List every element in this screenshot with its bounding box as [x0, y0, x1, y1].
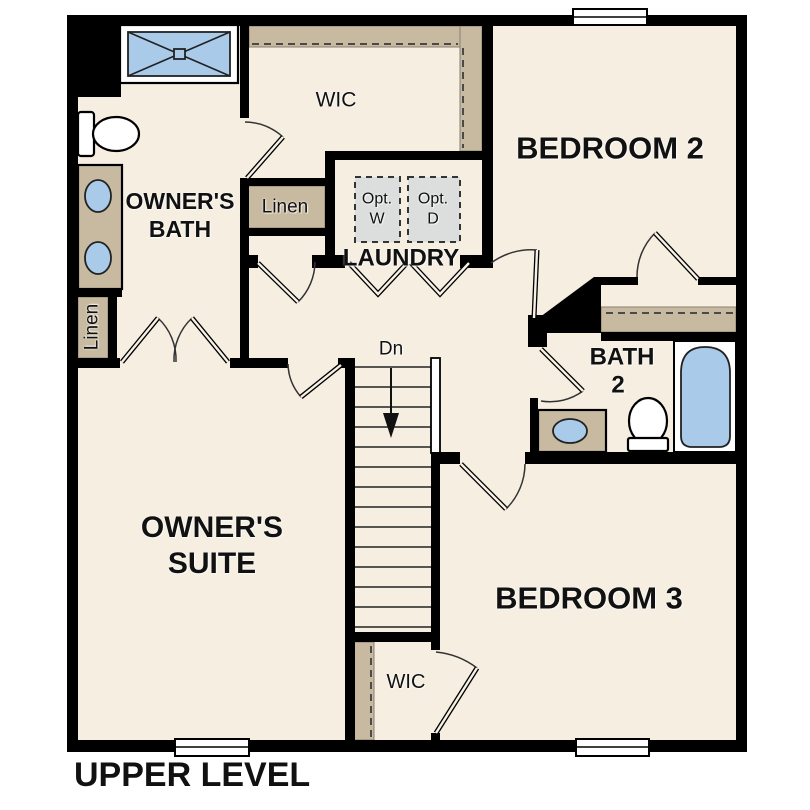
wic-lower-shelf	[353, 642, 374, 740]
opt-washer-label-line1: Opt.	[362, 189, 392, 208]
sink-icon	[85, 242, 111, 274]
sink-icon	[553, 419, 587, 443]
owners-bath-label-line1: OWNER'S	[126, 188, 235, 216]
opt-washer-label-line2: W	[369, 209, 384, 228]
bedroom3-label: BEDROOM 3	[495, 579, 683, 616]
bath2-label-line2: 2	[611, 372, 624, 401]
owners-suite-label-line2: SUITE	[168, 546, 256, 582]
stairs-down-label: Dn	[379, 339, 403, 362]
floor-plan-upper-level: BEDROOM 2 BEDROOM 3 OWNER'S SUITE OWNER'…	[0, 0, 810, 810]
owners-bath-label-line2: BATH	[149, 216, 211, 244]
stair-railing	[431, 358, 440, 453]
owners-suite-label-line1: OWNER'S	[141, 510, 283, 546]
linen-lower-label: Linen	[82, 304, 105, 351]
toilet-icon	[628, 398, 668, 451]
bedroom2-label: BEDROOM 2	[516, 129, 704, 166]
sink-icon	[85, 180, 111, 212]
wic-upper-label: WIC	[316, 87, 357, 112]
opt-dryer-label-line1: Opt.	[418, 189, 448, 208]
opt-dryer-label-line2: D	[427, 209, 439, 228]
bath2-vanity	[538, 410, 606, 452]
bathtub-icon	[674, 341, 736, 452]
double-vanity	[78, 165, 122, 289]
shower-icon	[120, 25, 238, 83]
level-title: UPPER LEVEL	[74, 756, 310, 795]
bath2-label-line1: BATH	[590, 344, 655, 373]
laundry-label: LAUNDRY	[343, 245, 459, 274]
linen-upper-label: Linen	[262, 197, 309, 220]
wic-lower-label: WIC	[387, 670, 426, 694]
bedroom2-closet-shelf	[601, 307, 736, 332]
chase-block	[67, 15, 121, 97]
